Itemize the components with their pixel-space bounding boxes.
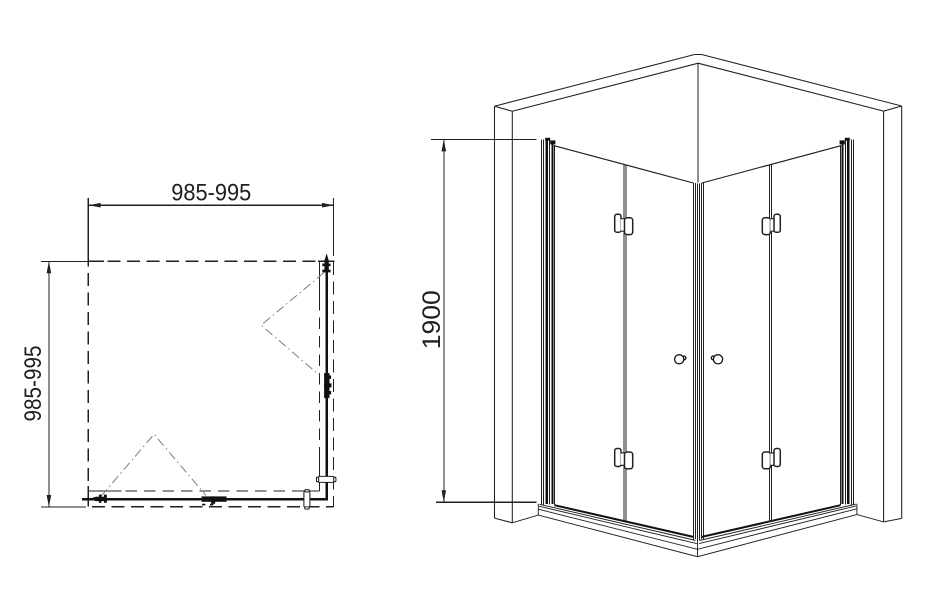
svg-text:1900: 1900 <box>418 290 446 349</box>
svg-text:985-995: 985-995 <box>20 346 47 422</box>
svg-text:985-995: 985-995 <box>171 180 251 207</box>
